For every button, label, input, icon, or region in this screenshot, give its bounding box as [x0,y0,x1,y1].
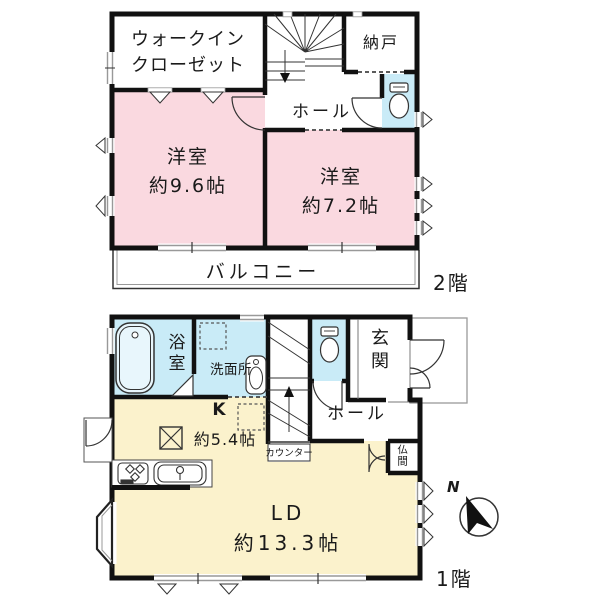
window [416,505,434,523]
kitchen-counter [112,460,212,490]
compass-icon [460,496,498,536]
window [415,199,433,213]
washroom-label: 洗面所 [210,360,252,380]
altar-room-label: 仏間 [396,444,408,467]
kitchen-size-label: 約5.4帖 [194,428,256,452]
window [96,196,115,216]
living-dining-label: LD 約13.3帖 [234,498,343,558]
bedroom-7-2-label: 洋室 約7.2帖 [302,163,380,222]
stairs-down-arrow-icon [280,73,290,83]
window [415,221,433,235]
entrance-label: 玄関 [365,328,392,374]
kitchen-label: K [212,398,225,424]
window [415,112,433,127]
entrance-porch [410,318,467,403]
compass-north-label: N [447,476,460,499]
wall-break [283,12,292,17]
walk-in-closet-label: ウォークイン クローゼット [131,27,245,79]
floor1-label: 1階 [436,564,473,594]
window [96,138,115,153]
shutter-mark-icon [158,584,176,594]
floor2-label: 2階 [433,268,470,298]
window [105,52,115,84]
stairs-up-arrow-icon [284,386,294,397]
floor-plan-canvas: ウォークイン クローゼット 納戸 ホール 洋室 約9.6帖 洋室 約7.2帖 バ… [0,0,600,600]
entrance-door-arc [410,368,430,388]
toilet-icon-2f [390,83,409,118]
bay-window [97,500,117,566]
bath-label: 浴室 [161,333,187,375]
hall-1f-label: ホール [327,402,387,428]
back-door [84,418,112,462]
window [416,482,434,500]
window [154,573,242,594]
door-arc [352,98,382,128]
toilet-icon-1f [321,327,339,362]
shutter-mark-icon [220,584,238,594]
window [416,528,434,546]
counter-edge [112,485,190,490]
counter-label: カウンター [265,447,313,461]
sliding-window [308,242,376,253]
stairs-2f-icon [265,14,344,83]
wall-break [353,12,362,17]
window [240,314,264,322]
storage-room-label: 納戸 [363,31,399,55]
window [106,328,115,354]
window [415,177,433,191]
sliding-window [158,242,226,253]
bathtub-icon [116,323,154,393]
balcony-label: バルコニー [206,258,321,287]
sliding-window [270,573,366,584]
bedroom-9-6-label: 洋室 約9.6帖 [149,143,227,202]
hall-2f-label: ホール [292,100,352,126]
